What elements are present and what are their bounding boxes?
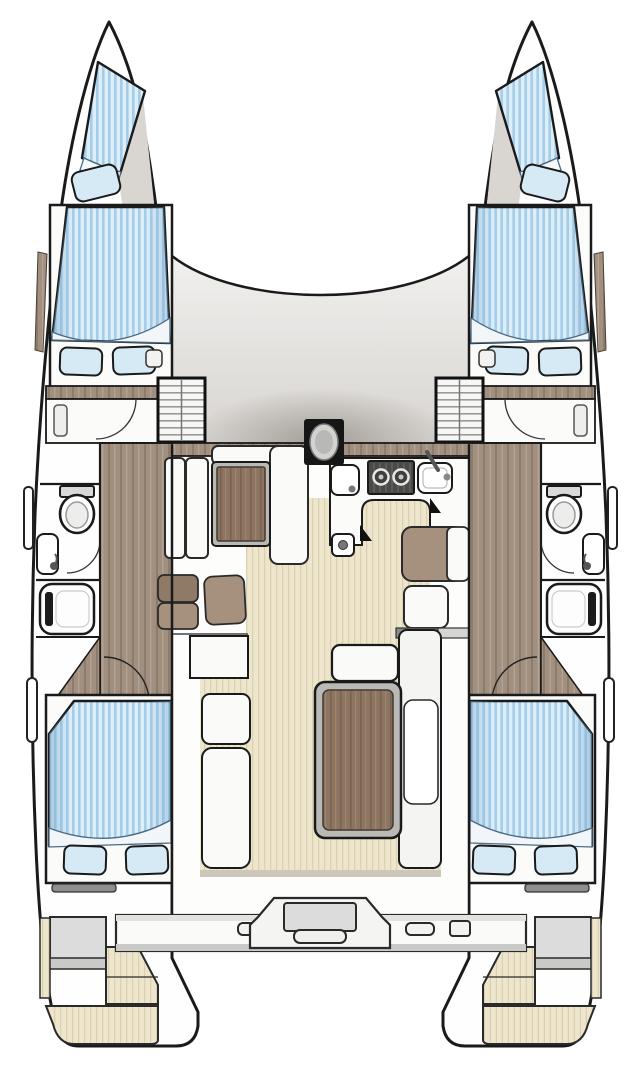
cockpit-sole-edge <box>200 870 441 877</box>
galley-sink-drain <box>349 486 356 493</box>
nav-side-panel <box>447 527 469 581</box>
floor-plan-svg <box>0 0 641 1080</box>
cockpit-box-left <box>190 636 248 678</box>
settee-seat-inner <box>186 458 208 558</box>
settee-cushion-a <box>158 575 198 602</box>
bridge-deck <box>116 419 526 951</box>
beam-cleat-right <box>406 923 434 935</box>
settee-seat-outer <box>165 458 185 558</box>
settee-cushion-c <box>204 575 246 625</box>
catamaran-floor-plan <box>0 0 641 1080</box>
transom-step-tread <box>284 903 356 931</box>
nav-seat-base <box>404 586 448 628</box>
saloon-aft-wall-right-light <box>438 628 469 638</box>
cockpit-bench-left-a <box>202 694 250 744</box>
saloon-table <box>217 467 265 541</box>
cockpit-bench-right-seat <box>404 700 438 804</box>
cockpit-bench-forward <box>332 645 398 681</box>
transom-handle <box>294 930 346 943</box>
cockpit-table <box>323 690 393 830</box>
cockpit <box>190 630 441 877</box>
cockpit-bench-left-b <box>202 748 250 868</box>
settee-bench-side <box>270 446 308 564</box>
mast-step <box>304 419 344 465</box>
beam-fitting <box>450 921 470 936</box>
galley-stove <box>368 461 414 494</box>
settee-cushion-b <box>158 603 198 629</box>
galley-locker <box>332 534 354 556</box>
transom-step-module <box>250 898 390 948</box>
